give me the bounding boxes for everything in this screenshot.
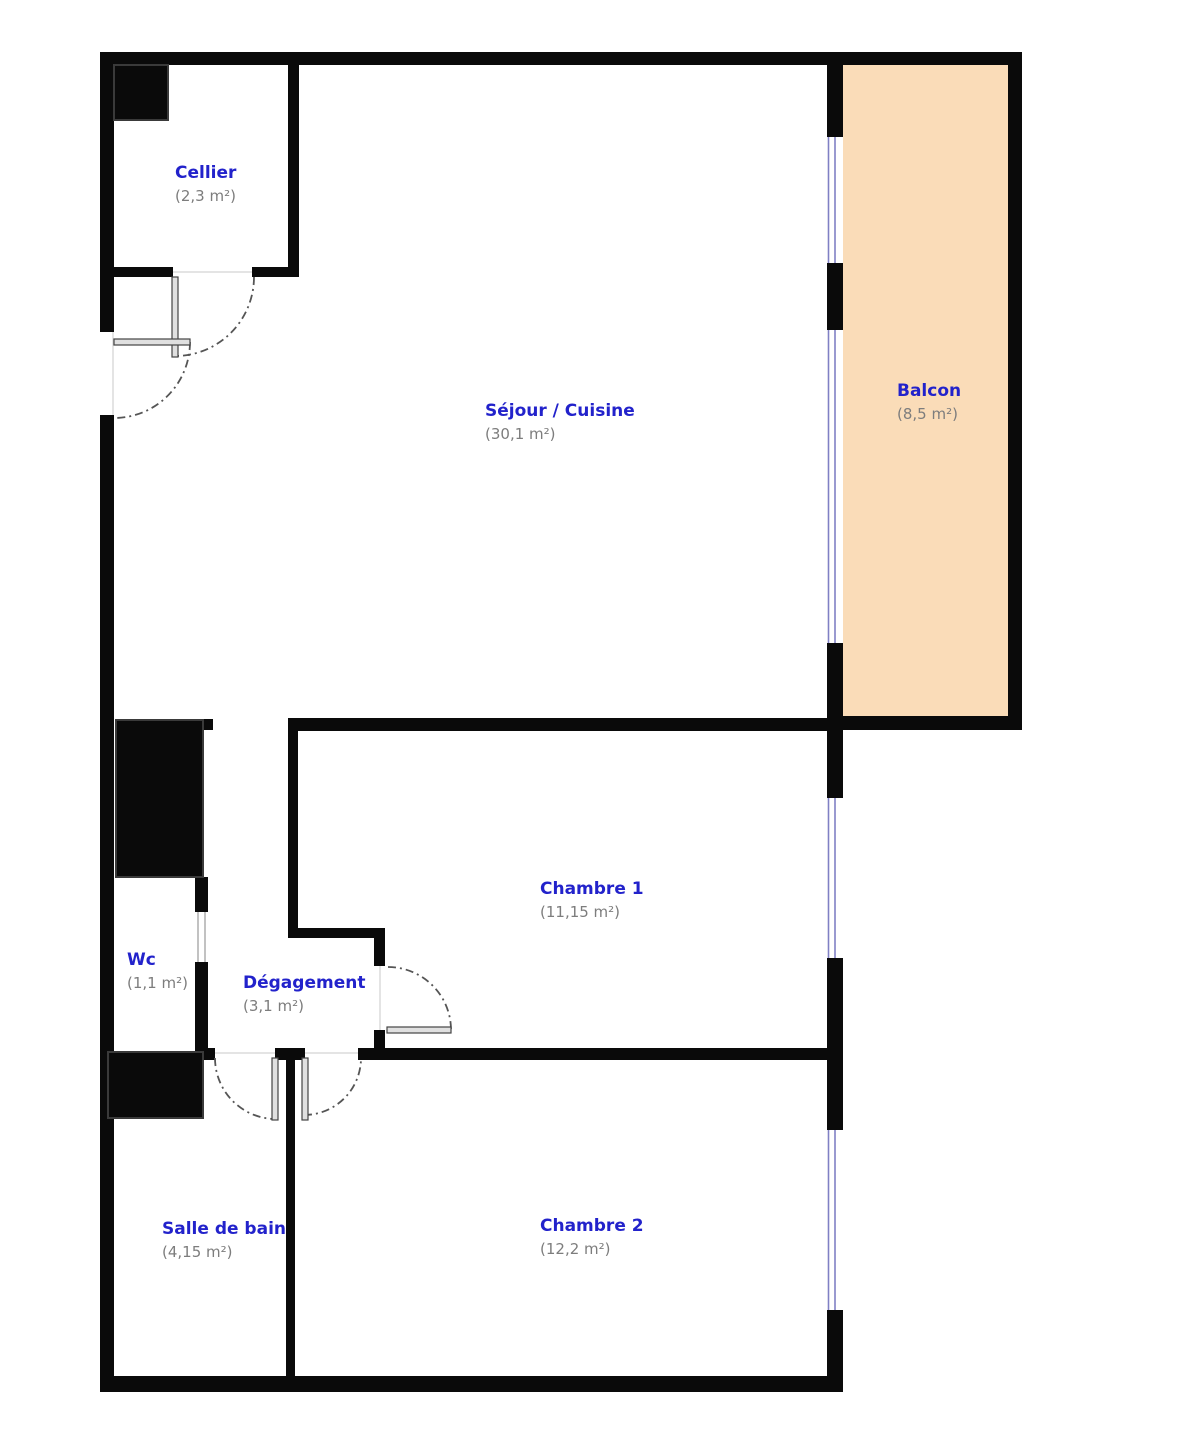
leaf-bathroom-door — [272, 1058, 278, 1120]
wall-east-seg5 — [827, 958, 843, 1130]
wall-notch-horizontal — [288, 928, 385, 938]
wall-east-seg4 — [827, 730, 843, 798]
wc-door-frame — [198, 912, 205, 962]
wall-bottom — [100, 1376, 843, 1392]
room-area: (8,5 m²) — [897, 403, 961, 426]
wall-notch-vertical-upper — [374, 928, 385, 966]
arc-chambre2-door — [304, 1058, 361, 1115]
room-area: (3,1 m²) — [243, 995, 365, 1018]
arc-bathroom-door — [215, 1058, 276, 1119]
wall-sdb-chambre2-divider — [286, 1058, 295, 1376]
room-area: (12,2 m²) — [540, 1238, 644, 1261]
duct-cellier — [114, 65, 168, 120]
leaf-chambre2-door — [302, 1058, 308, 1120]
room-name: Chambre 1 — [540, 878, 644, 901]
room-label-degagement: Dégagement (3,1 m²) — [243, 972, 365, 1018]
room-name: Salle de bain — [162, 1218, 286, 1241]
room-area: (30,1 m²) — [485, 423, 635, 446]
room-label-sejour-cuisine: Séjour / Cuisine (30,1 m²) — [485, 400, 635, 446]
wall-sejour-chambre1-divider — [288, 718, 843, 731]
wall-east-seg2 — [827, 263, 843, 330]
wall-chambre1-west — [288, 718, 298, 938]
wall-top — [100, 52, 1022, 65]
wall-wc-east-upper — [195, 877, 208, 912]
room-label-cellier: Cellier (2,3 m²) — [175, 162, 236, 208]
room-name: Séjour / Cuisine — [485, 400, 635, 423]
wall-cellier-south-left — [114, 267, 173, 277]
room-area: (11,15 m²) — [540, 901, 644, 924]
floor-plan: Cellier (2,3 m²) Séjour / Cuisine (30,1 … — [0, 0, 1179, 1440]
arc-entrance-door — [114, 342, 190, 418]
wall-balcony-bottom — [830, 716, 1022, 730]
room-label-wc: Wc (1,1 m²) — [127, 949, 188, 995]
room-label-balcon: Balcon (8,5 m²) — [897, 380, 961, 426]
duct-above-wc — [116, 720, 203, 877]
room-name: Chambre 2 — [540, 1215, 644, 1238]
wall-east-seg6 — [827, 1310, 843, 1376]
wall-cellier-south-right — [252, 267, 299, 277]
leaf-chambre1-door — [387, 1027, 451, 1033]
wall-balcony-right — [1008, 52, 1022, 730]
room-name: Balcon — [897, 380, 961, 403]
room-label-chambre1: Chambre 1 (11,15 m²) — [540, 878, 644, 924]
wall-duct-stub — [203, 719, 213, 730]
arc-chambre1-door — [388, 967, 451, 1030]
wall-cellier-east — [288, 65, 299, 277]
wall-left-lower — [100, 415, 114, 1392]
wall-chambre1-chambre2-divider — [358, 1048, 843, 1060]
room-name: Wc — [127, 949, 188, 972]
room-area: (1,1 m²) — [127, 972, 188, 995]
leaf-entrance-door — [114, 339, 190, 345]
room-area: (4,15 m²) — [162, 1241, 286, 1264]
wall-east-seg3 — [827, 643, 843, 730]
wall-wc-east-lower — [195, 962, 208, 1058]
room-label-chambre2: Chambre 2 (12,2 m²) — [540, 1215, 644, 1261]
wall-left-upper — [100, 52, 114, 332]
room-label-salle-de-bain: Salle de bain (4,15 m²) — [162, 1218, 286, 1264]
room-area: (2,3 m²) — [175, 185, 236, 208]
duct-below-wc — [108, 1052, 203, 1118]
room-name: Dégagement — [243, 972, 365, 995]
room-name: Cellier — [175, 162, 236, 185]
wall-east-seg1 — [827, 65, 843, 137]
